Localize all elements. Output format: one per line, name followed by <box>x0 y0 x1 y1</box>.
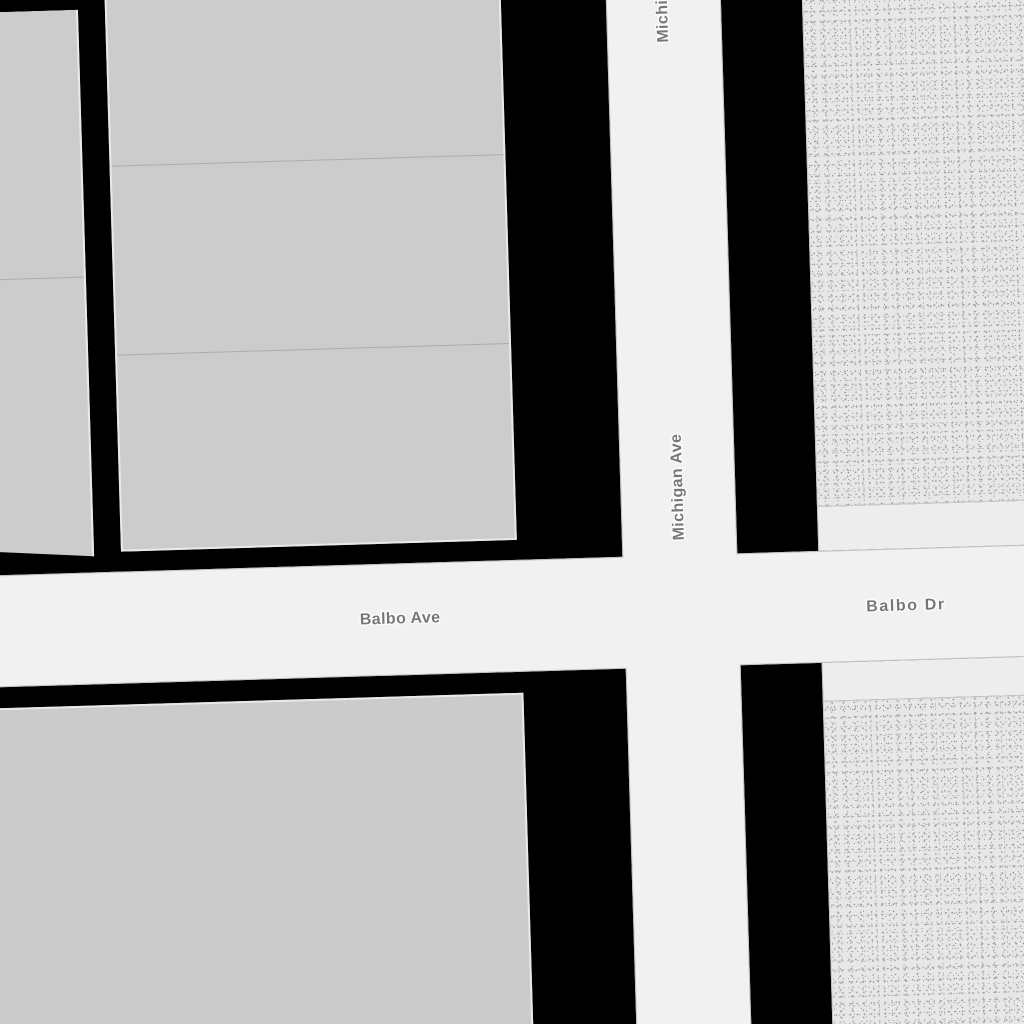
building-division-line <box>0 277 84 282</box>
building-division-line <box>112 154 504 167</box>
street-label-michigan-ave-top: Michigan Ave <box>652 0 673 43</box>
street-label-michigan-ave: Michigan Ave <box>668 433 689 540</box>
map-viewport[interactable]: Michigan Ave Michigan Ave Balbo Ave Balb… <box>0 0 1024 1024</box>
road-intersection <box>623 552 739 670</box>
park-area-south <box>823 693 1024 1024</box>
building-division-line <box>117 343 509 356</box>
park-path-band-south <box>822 655 1024 701</box>
building-block-south <box>0 693 536 1024</box>
map-canvas: Michigan Ave Michigan Ave Balbo Ave Balb… <box>0 0 1024 1024</box>
building-block-north <box>104 0 517 552</box>
building-block-west <box>0 10 95 574</box>
street-label-balbo-ave: Balbo Ave <box>360 609 441 629</box>
street-label-balbo-dr: Balbo Dr <box>866 596 946 616</box>
park-area-north <box>800 0 1024 507</box>
park-path-band-north <box>817 499 1024 551</box>
